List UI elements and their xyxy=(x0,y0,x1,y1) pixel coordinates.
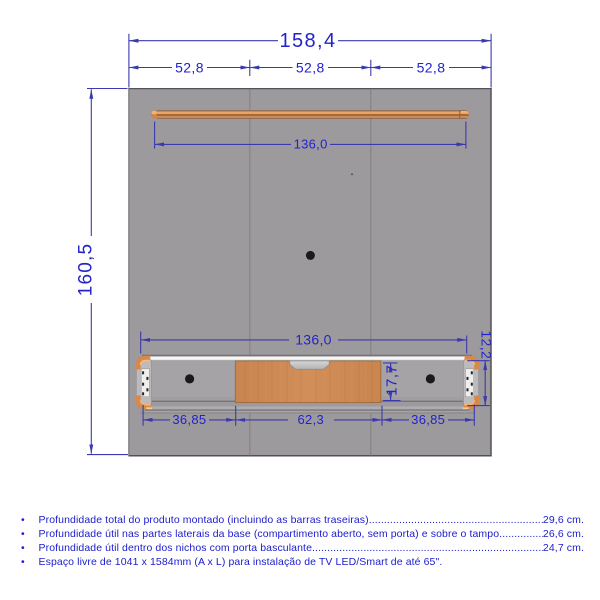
svg-text:17,7: 17,7 xyxy=(384,365,401,396)
svg-text:52,8: 52,8 xyxy=(296,59,325,75)
svg-text:36,85: 36,85 xyxy=(411,412,445,427)
svg-text:160,5: 160,5 xyxy=(76,243,97,297)
svg-text:52,8: 52,8 xyxy=(175,59,204,75)
svg-text:62,3: 62,3 xyxy=(298,412,325,427)
svg-text:52,8: 52,8 xyxy=(417,59,446,75)
svg-text:158,4: 158,4 xyxy=(279,30,336,52)
svg-text:136,0: 136,0 xyxy=(295,332,332,348)
svg-text:136,0: 136,0 xyxy=(294,137,328,152)
svg-text:36,85: 36,85 xyxy=(172,412,206,427)
svg-text:12,2: 12,2 xyxy=(478,330,494,359)
